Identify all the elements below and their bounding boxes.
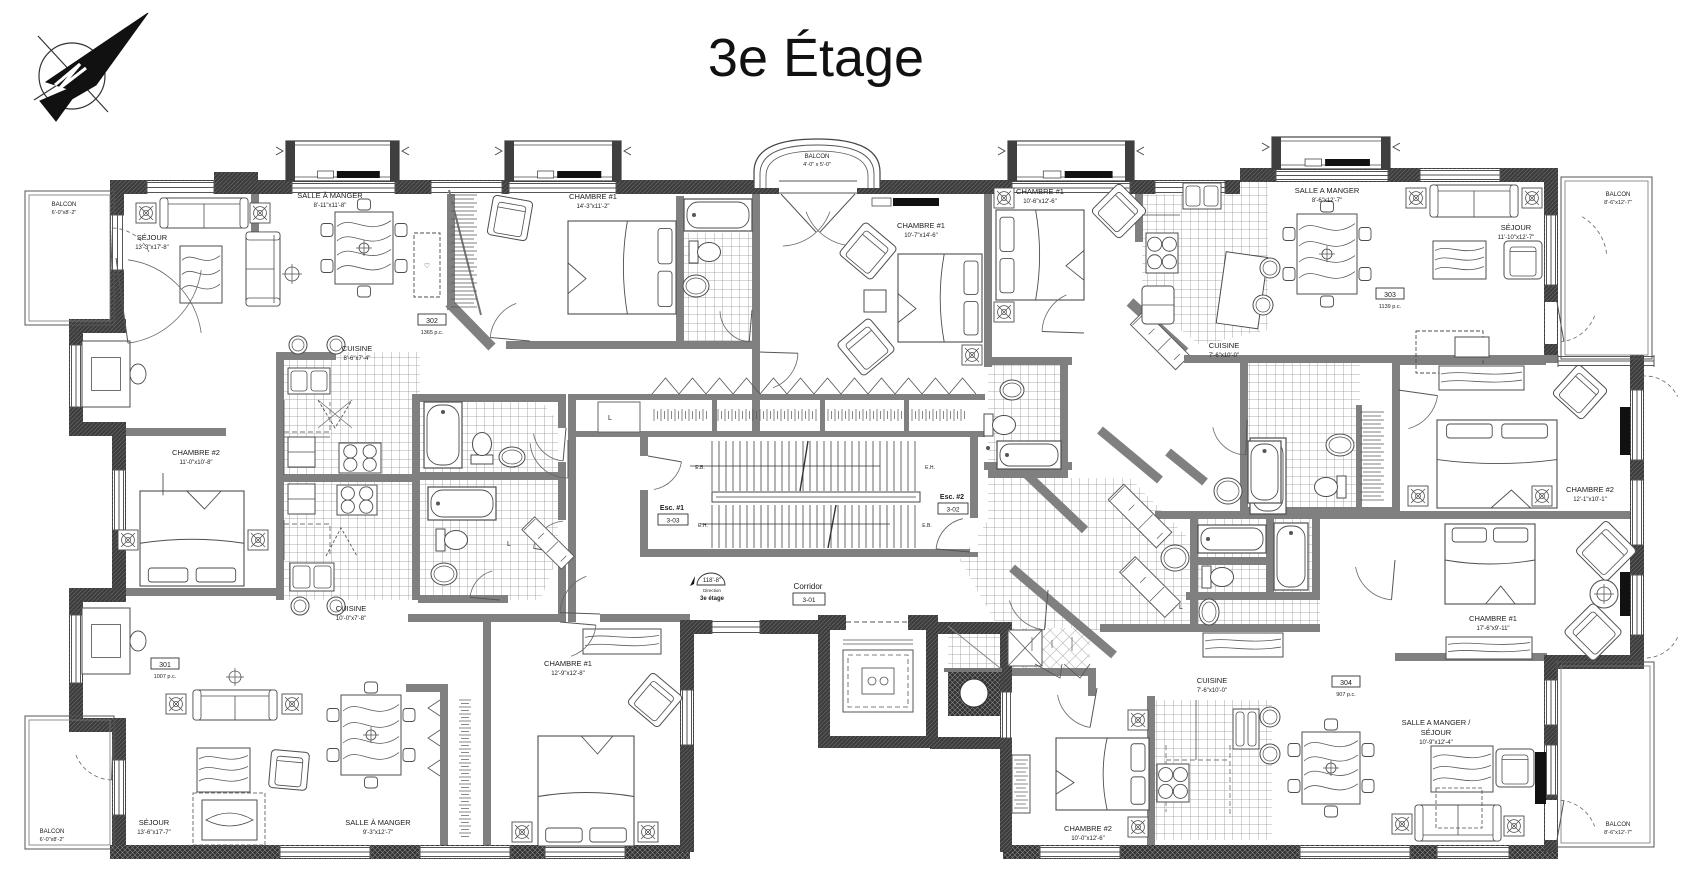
svg-text:CHAMBRE #1: CHAMBRE #1: [544, 659, 592, 668]
svg-text:CUISINE: CUISINE: [1209, 341, 1239, 350]
svg-text:1365 p.c.: 1365 p.c.: [421, 330, 444, 336]
svg-text:SÉJOUR: SÉJOUR: [1501, 223, 1532, 232]
svg-text:SÉJOUR: SÉJOUR: [1421, 728, 1452, 737]
svg-text:CHAMBRE #1: CHAMBRE #1: [569, 192, 617, 201]
svg-text:4'-0" x 5'-0": 4'-0" x 5'-0": [803, 162, 831, 168]
svg-text:9'-3"x12'-7": 9'-3"x12'-7": [363, 830, 393, 836]
svg-text:3-03: 3-03: [666, 518, 679, 525]
svg-text:3e étage: 3e étage: [700, 596, 725, 602]
svg-text:8'-6"x7'-4": 8'-6"x7'-4": [344, 356, 371, 362]
svg-text:BALCON: BALCON: [1606, 192, 1631, 198]
svg-text:CHAMBRE #1: CHAMBRE #1: [1469, 614, 1517, 623]
svg-text:CHAMBRE #2: CHAMBRE #2: [172, 448, 220, 457]
svg-text:BALCON: BALCON: [40, 829, 65, 835]
svg-text:6'-0"x8'-2": 6'-0"x8'-2": [52, 210, 77, 216]
svg-text:SALLE A MANGER: SALLE A MANGER: [1295, 186, 1360, 195]
svg-text:♡: ♡: [424, 262, 430, 270]
svg-text:SALLE À MANGER: SALLE À MANGER: [345, 818, 411, 827]
svg-text:BALCON: BALCON: [805, 154, 830, 160]
svg-text:L: L: [507, 541, 511, 548]
svg-text:12'-9"x12'-8": 12'-9"x12'-8": [551, 671, 585, 677]
svg-text:6'-0"x8'-2": 6'-0"x8'-2": [40, 837, 65, 843]
svg-text:CHAMBRE #2: CHAMBRE #2: [1064, 824, 1112, 833]
svg-text:CUISINE: CUISINE: [342, 344, 372, 353]
svg-text:CHAMBRE #1: CHAMBRE #1: [897, 221, 945, 230]
svg-text:13'-6"x17'-7": 13'-6"x17'-7": [137, 830, 171, 836]
svg-text:E.H.: E.H.: [698, 523, 708, 529]
svg-text:SÉJOUR: SÉJOUR: [137, 233, 168, 242]
svg-text:10'-0"x7'-8": 10'-0"x7'-8": [336, 616, 366, 622]
svg-text:8'-6"x12'-7": 8'-6"x12'-7": [1312, 198, 1342, 204]
svg-text:8'-6"x12'-7": 8'-6"x12'-7": [1604, 200, 1632, 206]
svg-text:SALLE A MANGER /: SALLE A MANGER /: [1402, 718, 1472, 727]
svg-text:11'-10"x12'-7": 11'-10"x12'-7": [1498, 235, 1534, 241]
svg-text:17'-6"x9'-11": 17'-6"x9'-11": [1476, 626, 1509, 632]
svg-text:3-01: 3-01: [802, 597, 815, 604]
svg-text:303: 303: [1384, 292, 1396, 299]
svg-text:CUISINE: CUISINE: [1197, 676, 1227, 685]
svg-text:Esc. #2: Esc. #2: [940, 494, 964, 501]
svg-text:907 p.c.: 907 p.c.: [1336, 692, 1356, 698]
svg-text:7'-6"x10'-0": 7'-6"x10'-0": [1209, 353, 1239, 359]
svg-text:10'-7"x14'-6": 10'-7"x14'-6": [904, 233, 938, 239]
svg-text:CHAMBRE #2: CHAMBRE #2: [1566, 485, 1614, 494]
svg-text:1007 p.c.: 1007 p.c.: [154, 674, 177, 680]
svg-text:12'-1"x10'-1": 12'-1"x10'-1": [1573, 497, 1607, 503]
svg-text:Corridor: Corridor: [794, 582, 823, 591]
svg-text:Esc. #1: Esc. #1: [660, 505, 684, 512]
svg-text:SÉJOUR: SÉJOUR: [139, 818, 170, 827]
svg-text:BALCON: BALCON: [1606, 822, 1631, 828]
svg-text:10'-9"x12'-4": 10'-9"x12'-4": [1419, 740, 1453, 746]
svg-text:BALCON: BALCON: [52, 202, 77, 208]
svg-text:8'-11"x11'-8": 8'-11"x11'-8": [314, 203, 347, 209]
svg-text:11'-0"x10'-8": 11'-0"x10'-8": [179, 460, 212, 466]
svg-text:Direction: Direction: [703, 588, 721, 593]
svg-text:13'-3"x17'-8": 13'-3"x17'-8": [135, 245, 169, 251]
svg-text:7'-6"x10'-0": 7'-6"x10'-0": [1197, 688, 1227, 694]
svg-text:301: 301: [159, 662, 171, 669]
svg-text:10'-0"x12'-6": 10'-0"x12'-6": [1071, 836, 1105, 842]
svg-text:118'-8": 118'-8": [703, 578, 721, 584]
svg-text:1139 p.c.: 1139 p.c.: [1379, 304, 1402, 310]
svg-text:L: L: [608, 415, 612, 422]
svg-text:SALLE À MANGER: SALLE À MANGER: [297, 191, 363, 200]
svg-text:E.B.: E.B.: [922, 523, 931, 529]
svg-text:10'-6"x12'-6": 10'-6"x12'-6": [1023, 199, 1057, 205]
svg-text:302: 302: [426, 318, 438, 325]
svg-text:304: 304: [1340, 680, 1352, 687]
svg-text:8'-6"x12'-7": 8'-6"x12'-7": [1604, 830, 1632, 836]
svg-text:14'-3"x11'-2": 14'-3"x11'-2": [576, 204, 609, 210]
svg-text:L: L: [1179, 604, 1183, 611]
svg-text:CHAMBRE #1: CHAMBRE #1: [1016, 187, 1064, 196]
svg-text:3e Étage: 3e Étage: [708, 28, 924, 88]
svg-text:CUISINE: CUISINE: [336, 604, 366, 613]
svg-text:E.B.: E.B.: [695, 465, 704, 471]
svg-text:3-02: 3-02: [946, 507, 959, 514]
svg-text:E.H.: E.H.: [925, 465, 935, 471]
